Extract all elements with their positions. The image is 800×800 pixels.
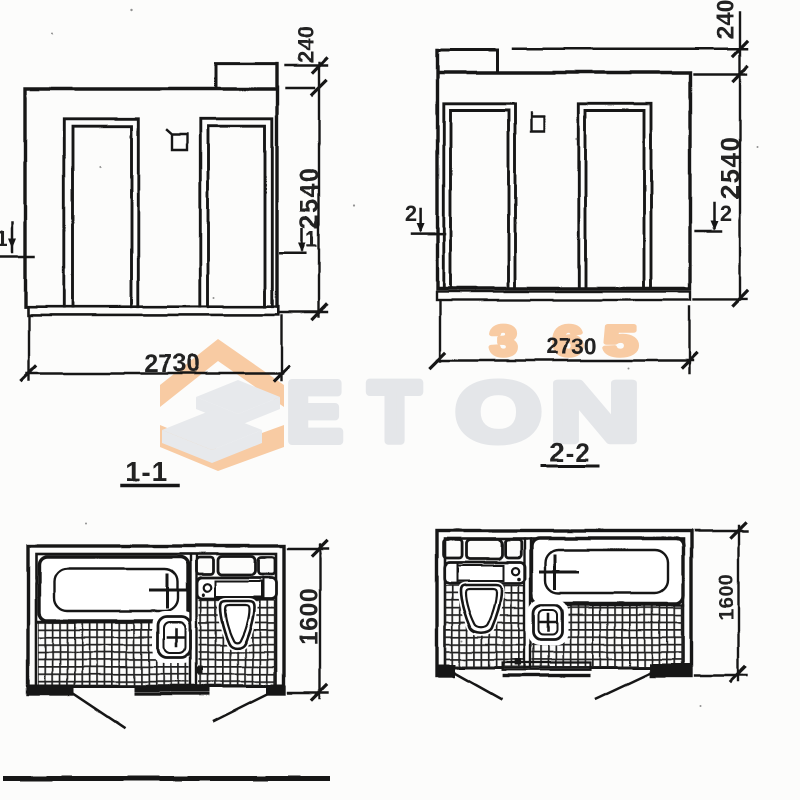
svg-text:2-2: 2-2: [550, 437, 591, 467]
svg-text:2730: 2730: [144, 350, 200, 378]
svg-text:5: 5: [604, 318, 638, 365]
svg-text:E: E: [286, 365, 342, 459]
svg-text:2540: 2540: [294, 166, 324, 230]
svg-text:2: 2: [720, 201, 732, 226]
svg-text:1600: 1600: [296, 587, 324, 645]
svg-text:1600: 1600: [716, 574, 738, 621]
svg-text:T: T: [369, 365, 420, 459]
svg-text:1-1: 1-1: [125, 456, 168, 487]
svg-text:2730: 2730: [546, 333, 597, 359]
svg-text:1: 1: [0, 226, 8, 251]
svg-text:240: 240: [713, 0, 740, 40]
svg-text:2: 2: [405, 201, 417, 226]
svg-text:1: 1: [305, 227, 317, 252]
svg-text:3: 3: [490, 317, 517, 364]
svg-text:2540: 2540: [715, 136, 745, 200]
svg-text:240: 240: [293, 27, 318, 64]
svg-text:O: O: [455, 365, 541, 459]
